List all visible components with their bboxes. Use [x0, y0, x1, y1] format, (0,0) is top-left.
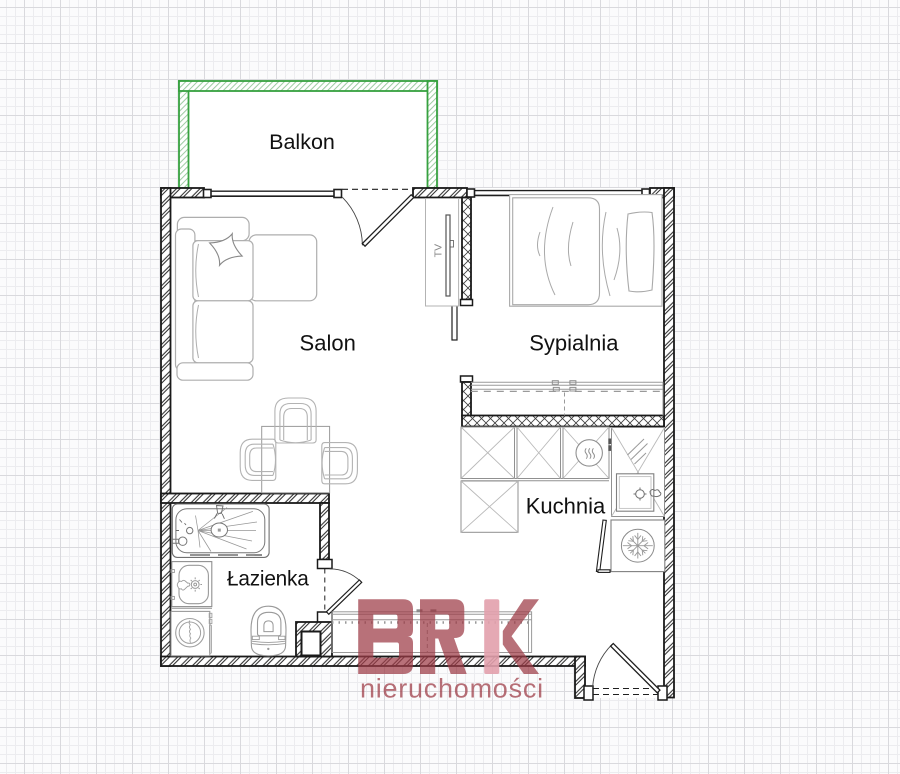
- svg-text:TV: TV: [433, 244, 445, 257]
- svg-text:Salon: Salon: [300, 330, 356, 355]
- svg-text:Sypialnia: Sypialnia: [529, 331, 619, 356]
- svg-text:Kuchnia: Kuchnia: [526, 494, 606, 519]
- svg-text:Łazienka: Łazienka: [227, 568, 309, 591]
- svg-text:nieruchomości: nieruchomości: [360, 673, 544, 703]
- svg-text:Balkon: Balkon: [269, 130, 335, 154]
